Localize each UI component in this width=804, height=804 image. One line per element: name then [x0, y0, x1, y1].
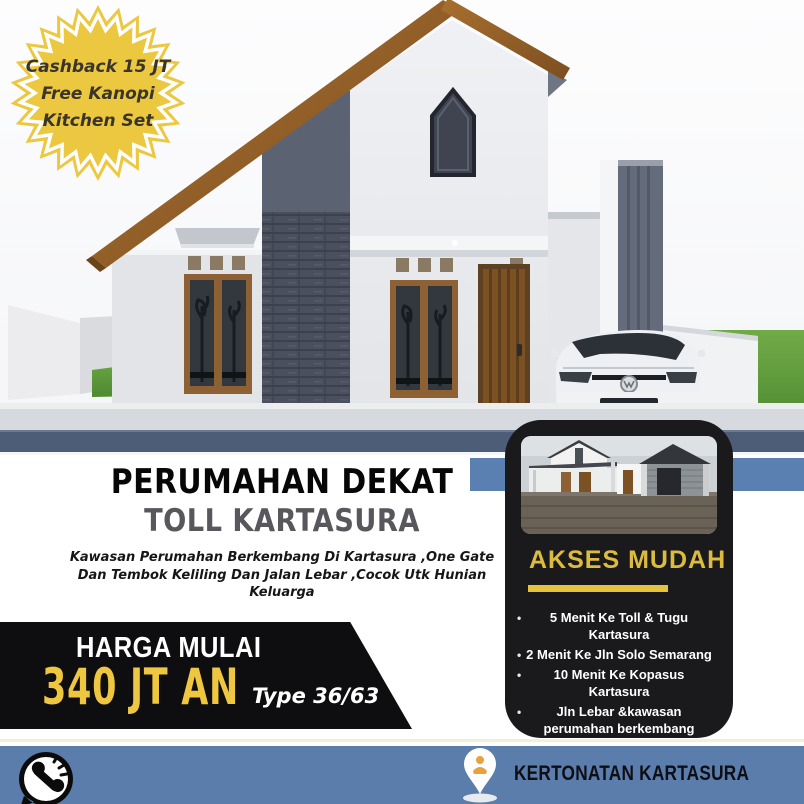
- divider-line: [0, 739, 804, 742]
- front-door: [478, 258, 530, 426]
- badge-line-3: Kitchen Set: [43, 111, 155, 131]
- starburst-badge: Cashback 15 JT Free Kanopi Kitchen Set: [7, 2, 189, 184]
- access-item: 5 Menit Ke Toll & Tugu Kartasura: [519, 609, 719, 643]
- card-heading: AKSES MUDAH: [529, 546, 726, 575]
- description-line-2: Dan Tembok Keliling Dan Jalan Lebar ,Coc…: [32, 567, 532, 585]
- badge-line-1: Cashback 15 JT: [26, 57, 172, 77]
- left-windows: [184, 274, 252, 394]
- card-photo: [521, 436, 717, 534]
- access-list: 5 Menit Ke Toll & Tugu Kartasura 2 Menit…: [505, 606, 733, 740]
- page-title: PERUMAHAN DEKAT: [62, 462, 502, 502]
- porch-eave: [340, 236, 548, 257]
- price-value: 340 JT AN: [42, 658, 239, 716]
- access-item: 10 Menit Ke Kopasus Kartasura: [519, 666, 719, 700]
- location-pin-icon: [456, 744, 504, 804]
- real-estate-poster: Cashback 15 JT Free Kanopi Kitchen Set P…: [0, 0, 804, 804]
- description-line-3: Keluarga: [32, 584, 532, 602]
- access-item: 2 Menit Ke Jln Solo Semarang: [519, 646, 719, 663]
- page-subtitle-title: TOLL KARTASURA: [62, 503, 502, 539]
- footer-bar: KERTONATAN KARTASURA: [0, 746, 804, 804]
- description: Kawasan Perumahan Berkembang Di Kartasur…: [32, 549, 532, 602]
- price-banner: HARGA MULAI 340 JT AN Type 36/63: [0, 622, 412, 729]
- access-card: AKSES MUDAH 5 Menit Ke Toll & Tugu Karta…: [505, 420, 733, 738]
- card-photo-image: [521, 436, 717, 534]
- badge-line-2: Free Kanopi: [41, 84, 156, 104]
- footer-location-text: KERTONATAN KARTASURA: [514, 762, 749, 786]
- house-type-label: Type 36/63: [252, 684, 379, 708]
- headline-block: PERUMAHAN DEKAT TOLL KARTASURA Kawasan P…: [32, 462, 532, 602]
- description-line-1: Kawasan Perumahan Berkembang Di Kartasur…: [32, 549, 532, 567]
- access-item: Jln Lebar &kawasan perumahan berkembang: [519, 703, 719, 737]
- card-divider: [528, 585, 668, 592]
- phone-icon: [14, 748, 78, 804]
